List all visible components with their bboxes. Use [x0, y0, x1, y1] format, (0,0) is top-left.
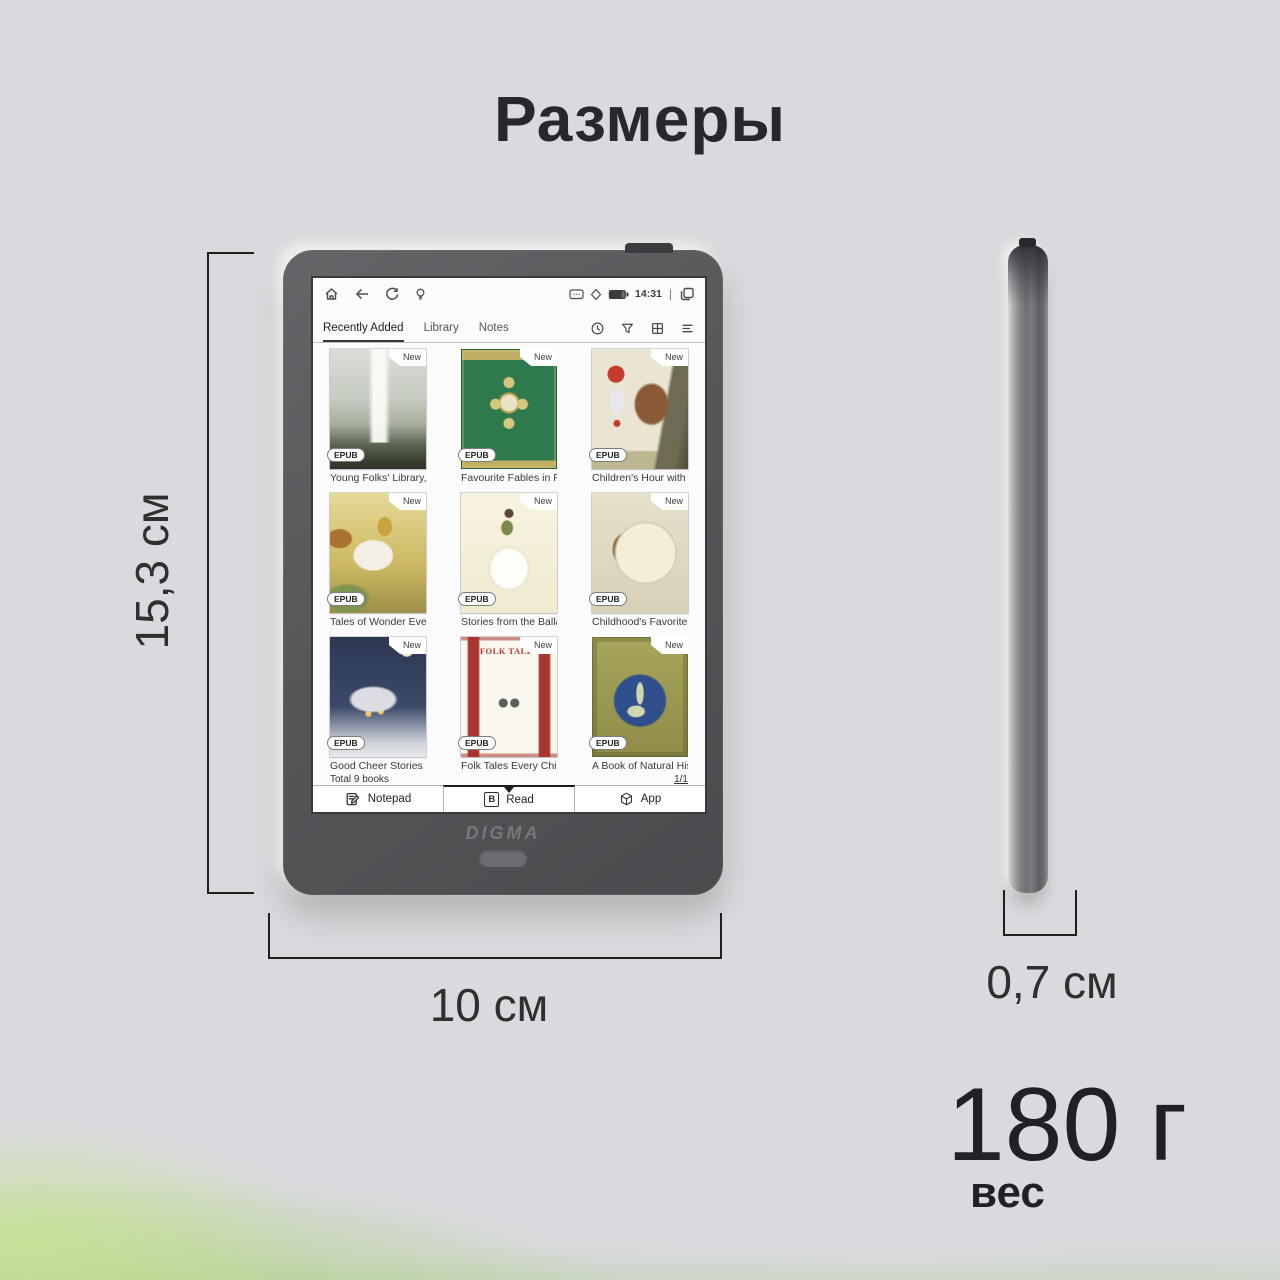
height-dimension-line — [207, 252, 254, 894]
frontlight-icon[interactable] — [413, 286, 428, 302]
book-cover[interactable]: New EPUB — [592, 349, 688, 469]
format-badge: EPUB — [458, 448, 496, 462]
front-home-button[interactable] — [479, 850, 527, 867]
back-icon[interactable] — [353, 286, 371, 302]
book-title: Stories from the Ballad... — [461, 616, 557, 628]
format-badge: EPUB — [589, 736, 627, 750]
notepad-icon — [345, 791, 361, 807]
book-cover[interactable]: New EPUB — [592, 637, 688, 757]
read-icon — [484, 792, 499, 807]
recents-icon[interactable] — [679, 286, 695, 302]
new-badge: New — [520, 349, 557, 366]
book-card[interactable]: New EPUB Childhood's Favorites a... — [592, 493, 688, 628]
new-badge: New — [520, 493, 557, 510]
book-cover[interactable]: New EPUB — [330, 493, 426, 613]
nav-label-notepad: Notepad — [368, 793, 411, 805]
book-card[interactable]: New EPUB A Book of Natural Hist... — [592, 637, 688, 772]
book-cover[interactable]: New EPUB — [330, 349, 426, 469]
library-toolbar — [590, 321, 695, 342]
format-badge: EPUB — [589, 592, 627, 606]
new-badge: New — [651, 349, 688, 366]
nav-item-app[interactable]: App — [575, 785, 705, 812]
book-cover[interactable]: New EPUB — [461, 493, 557, 613]
book-title: Tales of Wonder Every ... — [330, 616, 426, 628]
book-cover[interactable]: New EPUB — [592, 493, 688, 613]
book-title: Folk Tales Every Child S... — [461, 760, 557, 772]
nav-item-notepad[interactable]: Notepad — [313, 785, 443, 812]
height-dimension-label: 15,3 см — [125, 493, 179, 650]
new-badge: New — [389, 637, 426, 654]
sync-icon[interactable] — [384, 286, 400, 302]
nav-label-app: App — [641, 793, 661, 805]
book-grid: New EPUB Young Folks' Library, V... New … — [313, 343, 705, 772]
book-card[interactable]: New EPUB Tales of Wonder Every ... — [330, 493, 426, 628]
nav-label-read: Read — [506, 794, 534, 806]
message-icon — [569, 288, 584, 301]
format-badge: EPUB — [327, 448, 365, 462]
page-indicator[interactable]: 1/1 — [674, 774, 688, 785]
format-badge: EPUB — [327, 736, 365, 750]
weight-label: вес — [970, 1168, 1045, 1218]
tab-recently-added[interactable]: Recently Added — [323, 322, 404, 342]
new-badge: New — [389, 349, 426, 366]
nav-item-read[interactable]: Read — [443, 785, 575, 812]
book-title: A Book of Natural Hist... — [592, 760, 688, 772]
power-button[interactable] — [625, 243, 673, 253]
new-badge: New — [389, 493, 426, 510]
bottom-nav: Notepad Read App — [313, 785, 705, 812]
new-badge: New — [651, 637, 688, 654]
book-card[interactable]: New EPUB Favourite Fables in Pro... — [461, 349, 557, 484]
book-title: Children's Hour with Re... — [592, 472, 688, 484]
format-badge: EPUB — [589, 448, 627, 462]
depth-dimension-label: 0,7 см — [986, 955, 1117, 1009]
book-cover[interactable]: New EPUB — [330, 637, 426, 757]
book-card[interactable]: New EPUB Good Cheer Stories Eve... — [330, 637, 426, 772]
status-time: 14:31 — [635, 288, 662, 300]
format-badge: EPUB — [458, 736, 496, 750]
total-books-label: Total 9 books — [330, 774, 389, 785]
home-icon[interactable] — [323, 286, 340, 302]
book-cover[interactable]: New EPUB — [461, 349, 557, 469]
book-title: Favourite Fables in Pro... — [461, 472, 557, 484]
status-right-cluster: 14:31 | — [569, 286, 695, 302]
book-title: Young Folks' Library, V... — [330, 472, 426, 484]
library-footer: Total 9 books 1/1 — [313, 772, 705, 785]
status-separator: | — [669, 287, 672, 301]
menu-icon[interactable] — [680, 321, 695, 336]
app-icon — [619, 791, 634, 807]
new-badge: New — [651, 493, 688, 510]
book-card[interactable]: New EPUB Young Folks' Library, V... — [330, 349, 426, 484]
depth-dimension-line — [1003, 890, 1077, 936]
product-dimensions-infographic: Размеры — [0, 0, 1280, 1280]
page-title: Размеры — [494, 82, 786, 156]
book-title: Childhood's Favorites a... — [592, 616, 688, 628]
tab-library[interactable]: Library — [424, 322, 459, 342]
library-tab-bar: Recently Added Library Notes — [313, 310, 705, 343]
book-card[interactable]: New EPUB Stories from the Ballad... — [461, 493, 557, 628]
ereader-side-view — [1008, 245, 1048, 893]
book-cover[interactable]: FOLK TALES New EPUB — [461, 637, 557, 757]
filter-icon[interactable] — [620, 321, 635, 336]
width-dimension-label: 10 см — [430, 978, 549, 1032]
format-badge: EPUB — [458, 592, 496, 606]
format-badge: EPUB — [327, 592, 365, 606]
book-title: Good Cheer Stories Eve... — [330, 760, 426, 772]
battery-icon — [608, 289, 629, 300]
diamond-icon — [590, 288, 602, 301]
brand-logo: DIGMA — [466, 823, 541, 844]
history-icon[interactable] — [590, 321, 605, 336]
ereader-screen: 14:31 | Recently Added Library Notes — [313, 278, 705, 812]
width-dimension-line — [268, 913, 722, 959]
book-card[interactable]: FOLK TALES New EPUB Folk Tales Every Chi… — [461, 637, 557, 772]
ereader-front-view: 14:31 | Recently Added Library Notes — [283, 250, 723, 895]
book-card[interactable]: New EPUB Children's Hour with Re... — [592, 349, 688, 484]
grid-view-icon[interactable] — [650, 321, 665, 336]
status-bar: 14:31 | — [313, 278, 705, 310]
tab-notes[interactable]: Notes — [479, 322, 509, 342]
